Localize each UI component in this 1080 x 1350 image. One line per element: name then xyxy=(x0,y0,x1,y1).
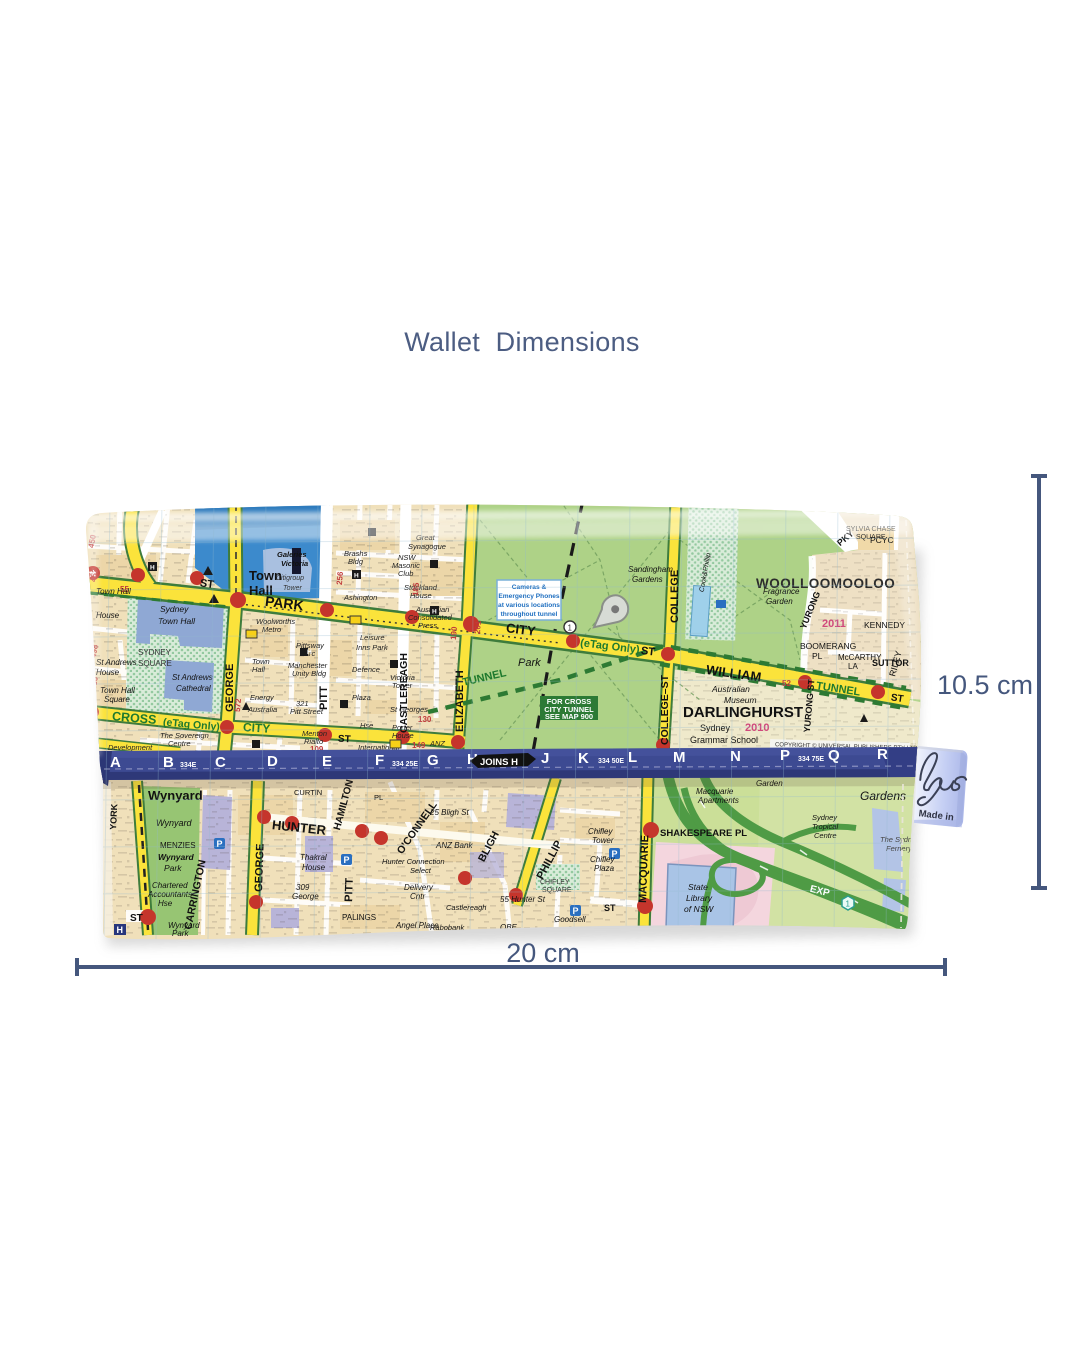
svg-text:Inns Park: Inns Park xyxy=(356,643,389,652)
svg-text:Chartered: Chartered xyxy=(152,881,188,890)
svg-text:2010: 2010 xyxy=(745,722,769,734)
svg-text:201: 201 xyxy=(473,620,483,635)
svg-text:334 50E: 334 50E xyxy=(598,758,624,765)
svg-text:Leisure: Leisure xyxy=(360,633,385,642)
svg-text:A: A xyxy=(110,754,121,771)
svg-text:B: B xyxy=(163,754,174,771)
svg-text:1: 1 xyxy=(846,900,851,909)
svg-text:SEE MAP 900: SEE MAP 900 xyxy=(545,712,593,721)
svg-text:Garden: Garden xyxy=(766,597,793,606)
svg-text:SQUARE: SQUARE xyxy=(856,534,886,541)
svg-text:G: G xyxy=(427,752,439,769)
svg-text:PL: PL xyxy=(374,793,383,802)
svg-text:L: L xyxy=(628,749,637,766)
svg-text:Library: Library xyxy=(686,893,713,903)
svg-text:Select: Select xyxy=(410,866,432,875)
svg-text:334 25E: 334 25E xyxy=(392,761,418,768)
svg-text:Defence: Defence xyxy=(352,665,380,674)
svg-text:CASTLEREAGH: CASTLEREAGH xyxy=(398,653,410,733)
svg-text:2011: 2011 xyxy=(822,618,846,630)
svg-text:Ashington: Ashington xyxy=(343,593,377,602)
svg-text:MACQUARIE: MACQUARIE xyxy=(637,835,651,903)
svg-text:Centre: Centre xyxy=(168,739,191,748)
svg-text:Metro: Metro xyxy=(262,625,281,634)
svg-text:Development: Development xyxy=(108,743,153,752)
svg-text:SYDNEY: SYDNEY xyxy=(138,648,172,657)
svg-text:Park: Park xyxy=(518,657,541,669)
svg-text:COLLEGE–ST: COLLEGE–ST xyxy=(659,674,671,745)
svg-text:D: D xyxy=(267,753,278,770)
svg-text:SUTTOR: SUTTOR xyxy=(872,658,909,668)
svg-text:Australian: Australian xyxy=(711,684,750,694)
svg-text:Wynyard: Wynyard xyxy=(148,788,203,803)
svg-text:PALINGS: PALINGS xyxy=(342,913,376,922)
svg-text:at various locations: at various locations xyxy=(498,602,560,609)
svg-text:JOINS H: JOINS H xyxy=(480,757,518,768)
svg-text:Park: Park xyxy=(172,929,189,938)
svg-text:185: 185 xyxy=(411,582,421,597)
svg-text:SQUARE: SQUARE xyxy=(138,659,172,668)
svg-text:H: H xyxy=(117,925,124,935)
svg-text:Q: Q xyxy=(828,747,840,764)
svg-text:CURTIN: CURTIN xyxy=(294,788,322,797)
svg-text:Square: Square xyxy=(104,695,130,704)
svg-text:Wynyard: Wynyard xyxy=(156,818,193,828)
svg-text:Unity Bldg: Unity Bldg xyxy=(292,669,327,678)
svg-text:149: 149 xyxy=(412,741,426,750)
svg-text:52: 52 xyxy=(782,679,791,688)
svg-text:C: C xyxy=(215,754,226,771)
svg-text:COLLEGE: COLLEGE xyxy=(669,570,681,623)
svg-text:ST: ST xyxy=(130,913,143,924)
svg-text:H: H xyxy=(432,609,437,616)
svg-text:R: R xyxy=(877,746,888,763)
svg-text:E: E xyxy=(322,753,332,770)
svg-text:GEORGE: GEORGE xyxy=(224,664,236,712)
svg-text:Castlereagh: Castlereagh xyxy=(446,903,486,912)
svg-text:CHIFLEY: CHIFLEY xyxy=(540,879,570,886)
svg-text:Sydney: Sydney xyxy=(812,813,838,822)
svg-text:Town Hall: Town Hall xyxy=(158,616,196,626)
svg-text:334 75E: 334 75E xyxy=(798,756,824,763)
svg-text:DARLINGHURST: DARLINGHURST xyxy=(683,704,803,721)
svg-text:Tropical: Tropical xyxy=(812,822,838,831)
svg-text:Sydney: Sydney xyxy=(160,604,189,614)
svg-text:Town Hall: Town Hall xyxy=(100,686,135,695)
svg-text:Club: Club xyxy=(398,569,413,578)
svg-text:Town Hall: Town Hall xyxy=(96,587,131,596)
svg-text:of NSW: of NSW xyxy=(684,904,714,914)
svg-text:Fragrance: Fragrance xyxy=(763,587,800,596)
svg-text:Citigroup: Citigroup xyxy=(276,575,304,582)
svg-text:Synagogue: Synagogue xyxy=(408,542,446,551)
svg-text:Emergency Phones: Emergency Phones xyxy=(498,593,560,600)
svg-text:H: H xyxy=(90,713,95,720)
svg-text:Thakral: Thakral xyxy=(300,853,327,862)
svg-text:Plaza: Plaza xyxy=(594,864,615,873)
svg-text:Hunter Connection: Hunter Connection xyxy=(382,857,445,866)
svg-text:F: F xyxy=(375,752,384,769)
svg-text:KENNEDY: KENNEDY xyxy=(864,620,905,630)
svg-text:GEORGE: GEORGE xyxy=(253,843,267,892)
svg-text:334E: 334E xyxy=(180,762,197,769)
svg-text:Macquarie: Macquarie xyxy=(696,787,734,796)
svg-text:YORK: YORK xyxy=(108,803,119,830)
svg-text:ST: ST xyxy=(640,645,656,659)
svg-text:Centre: Centre xyxy=(814,831,837,840)
svg-text:SHAKESPEARE PL: SHAKESPEARE PL xyxy=(660,828,747,839)
svg-text:St Andrews: St Andrews xyxy=(172,673,213,682)
svg-text:PITT: PITT xyxy=(343,878,356,903)
svg-text:Museum: Museum xyxy=(724,695,757,705)
svg-text:25 Bligh St: 25 Bligh St xyxy=(429,808,469,817)
svg-text:Goodsell: Goodsell xyxy=(554,915,586,924)
svg-text:1: 1 xyxy=(568,624,573,633)
svg-text:309: 309 xyxy=(296,883,310,892)
svg-text:LA: LA xyxy=(848,662,858,671)
svg-text:Energy: Energy xyxy=(250,693,275,702)
svg-text:Park: Park xyxy=(164,863,182,873)
svg-text:Grammar School: Grammar School xyxy=(690,735,758,745)
svg-text:Sydney: Sydney xyxy=(700,723,731,733)
svg-text:BOOMERANG: BOOMERANG xyxy=(800,641,856,651)
svg-text:Wynyard: Wynyard xyxy=(158,852,195,862)
svg-text:State: State xyxy=(688,882,708,892)
svg-text:H: H xyxy=(307,649,312,656)
svg-text:Australia: Australia xyxy=(247,705,277,714)
svg-text:Chifley: Chifley xyxy=(590,855,615,864)
svg-text:Galeries: Galeries xyxy=(277,550,307,559)
svg-text:Accountants: Accountants xyxy=(147,890,192,899)
svg-text:Fernery: Fernery xyxy=(886,844,913,853)
svg-text:PL: PL xyxy=(812,651,823,661)
svg-text:MENZIES: MENZIES xyxy=(160,841,196,850)
svg-text:P: P xyxy=(217,839,223,849)
svg-text:H: H xyxy=(150,565,155,572)
svg-text:throughout tunnel: throughout tunnel xyxy=(501,611,558,618)
svg-text:ELIZABETH: ELIZABETH xyxy=(454,670,466,732)
svg-text:Bldg: Bldg xyxy=(348,557,364,566)
svg-text:PITT: PITT xyxy=(318,686,330,710)
svg-text:Chifley: Chifley xyxy=(588,827,613,836)
svg-text:ST: ST xyxy=(338,734,351,746)
svg-text:House: House xyxy=(302,863,326,872)
svg-text:Tower: Tower xyxy=(592,836,614,845)
svg-text:P: P xyxy=(780,747,790,764)
svg-text:Hse: Hse xyxy=(158,899,173,908)
svg-text:ST: ST xyxy=(890,692,904,705)
svg-text:Cathedral: Cathedral xyxy=(176,684,211,693)
svg-text:SQUARE: SQUARE xyxy=(542,887,572,894)
svg-text:190: 190 xyxy=(449,626,459,641)
svg-text:St Andrews: St Andrews xyxy=(96,658,137,667)
svg-text:K: K xyxy=(578,750,589,767)
svg-text:H: H xyxy=(354,573,359,580)
svg-text:P: P xyxy=(344,855,350,865)
svg-text:Cntr: Cntr xyxy=(410,892,425,901)
svg-text:ANZ: ANZ xyxy=(429,739,445,748)
svg-text:Gardens: Gardens xyxy=(632,575,663,584)
svg-text:Sandingham: Sandingham xyxy=(628,565,673,574)
svg-text:Hse: Hse xyxy=(360,721,373,730)
svg-text:J: J xyxy=(541,750,549,767)
svg-text:CITY: CITY xyxy=(242,720,270,736)
svg-text:Victoria: Victoria xyxy=(281,559,308,568)
svg-text:ST: ST xyxy=(604,903,616,913)
svg-text:256: 256 xyxy=(335,571,345,586)
